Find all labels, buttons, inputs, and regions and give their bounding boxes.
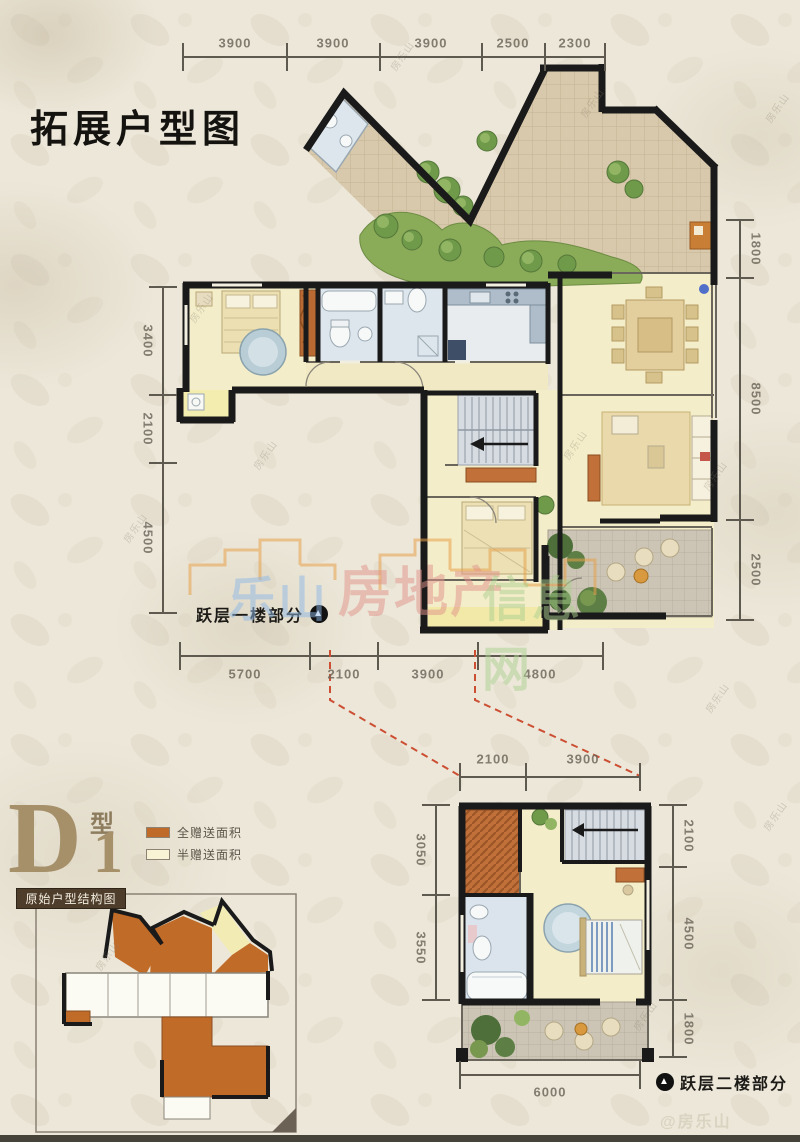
corner-watermark: @房乐山 xyxy=(660,1108,732,1132)
f2-dim-top-1: 2100 xyxy=(477,752,510,767)
f2-dim-left-2: 3550 xyxy=(414,932,429,965)
floorplan-page: 拓展户型图 3900 3900 3900 2500 2300 3400 2100… xyxy=(0,0,800,1142)
bottom-frame-bar xyxy=(0,1135,800,1142)
f2-dim-right-1: 2100 xyxy=(682,820,697,853)
f1-dim-left-1: 3400 xyxy=(141,325,156,358)
f1-dim-right-2: 8500 xyxy=(749,383,764,416)
f2-dim-left-1: 3050 xyxy=(414,834,429,867)
type-letter: D xyxy=(8,788,82,890)
f2-dim-right-3: 1800 xyxy=(682,1013,697,1046)
legend-row-half-gift: 半赠送面积 xyxy=(146,846,242,863)
page-title: 拓展户型图 xyxy=(30,98,245,153)
f1-dim-bottom-3: 3900 xyxy=(412,667,445,682)
f1-dim-top-4: 2500 xyxy=(497,36,530,51)
f1-dim-top-3: 3900 xyxy=(415,36,448,51)
f2-dim-bottom-1: 6000 xyxy=(534,1085,567,1100)
floor2-plan xyxy=(456,806,654,1062)
f1-dim-top-2: 3900 xyxy=(317,36,350,51)
up-triangle-icon: ▲ xyxy=(656,1073,674,1091)
f1-dim-top-5: 2300 xyxy=(559,36,592,51)
floorplans-drawing xyxy=(0,0,800,1142)
full-gift-label: 全赠送面积 xyxy=(177,824,242,841)
f1-dim-bottom-1: 5700 xyxy=(229,667,262,682)
f2-dim-top-2: 3900 xyxy=(567,752,600,767)
floor2-label-text: 跃层二楼部分 xyxy=(680,1070,788,1094)
f1-dim-right-3: 2500 xyxy=(749,554,764,587)
up-triangle-icon: ▲ xyxy=(310,605,328,623)
f1-dim-top-1: 3900 xyxy=(219,36,252,51)
area-legend: 全赠送面积 半赠送面积 xyxy=(146,824,242,868)
legend-row-full-gift: 全赠送面积 xyxy=(146,824,242,841)
mini-plan-title: 原始户型结构图 xyxy=(16,888,126,909)
f1-dim-left-2: 2100 xyxy=(141,413,156,446)
floor1-label-text: 跃层一楼部分 xyxy=(196,602,304,626)
half-gift-label: 半赠送面积 xyxy=(177,846,242,863)
full-gift-swatch xyxy=(146,827,170,838)
f1-dim-bottom-4: 4800 xyxy=(524,667,557,682)
f2-dim-right-2: 4500 xyxy=(682,918,697,951)
f1-dim-right-1: 1800 xyxy=(749,233,764,266)
f1-dim-bottom-2: 2100 xyxy=(328,667,361,682)
floor1-label: 跃层一楼部分 ▲ xyxy=(196,602,328,626)
floor2-label: ▲ 跃层二楼部分 xyxy=(656,1070,788,1094)
type-number: 1 xyxy=(93,822,123,882)
half-gift-swatch xyxy=(146,849,170,860)
